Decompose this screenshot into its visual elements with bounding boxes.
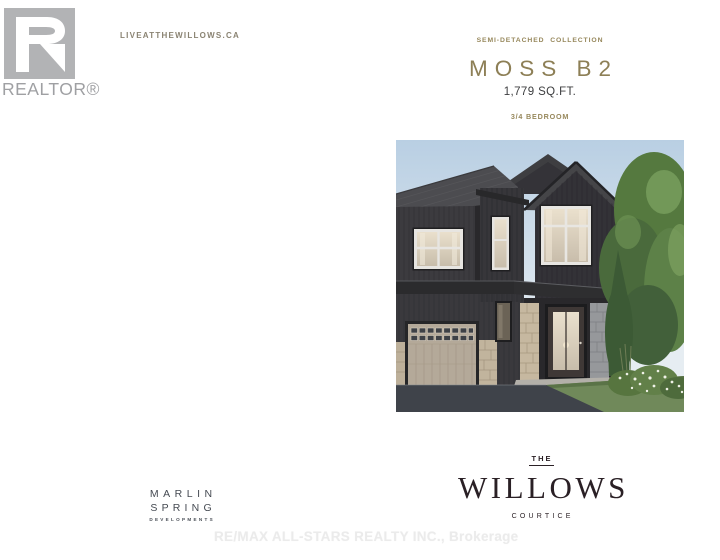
developer-name-line1: MARLIN	[128, 488, 234, 500]
plan-square-footage: 1,779 SQ.FT.	[400, 86, 680, 98]
realtor-label: REALTOR®	[2, 79, 100, 100]
developer-logo: MARLIN SPRING DEVELOPMENTS	[128, 488, 234, 522]
bumpout-window	[491, 216, 511, 272]
community-logo: THE WILLOWS COURTICE	[455, 448, 627, 520]
mid-metal-band	[396, 281, 524, 294]
garage-door	[405, 321, 479, 386]
community-city: COURTICE	[455, 513, 627, 520]
website-url: LIVEATTHEWILLOWS.CA	[120, 31, 240, 40]
plan-info: SEMI-DETACHED COLLECTION MOSS B2 1,779 S…	[400, 37, 680, 121]
plan-model-title: MOSS B2	[400, 56, 680, 82]
plan-bedrooms: 3/4 BEDROOM	[400, 112, 680, 121]
porch-stone-pillar-left	[520, 303, 539, 383]
realtor-r-icon	[4, 8, 75, 79]
lower-window	[495, 301, 512, 342]
community-prefix: THE	[529, 454, 554, 466]
brochure-page: REALTOR® LIVEATTHEWILLOWS.CA SEMI-DETACH…	[0, 0, 720, 560]
gable-window	[540, 205, 593, 267]
corner-trim	[475, 206, 480, 282]
collection-label: SEMI-DETACHED COLLECTION	[400, 37, 680, 44]
front-door	[545, 304, 587, 380]
community-name: WILLOWS	[455, 470, 627, 506]
realtor-logo: REALTOR®	[4, 8, 104, 79]
developer-name-line2: SPRING	[128, 502, 234, 514]
house-rendering	[396, 140, 684, 412]
left-window	[413, 228, 465, 271]
developer-name-line3: DEVELOPMENTS	[128, 517, 234, 522]
brokerage-watermark: RE/MAX ALL-STARS REALTY INC., Brokerage	[214, 529, 518, 544]
